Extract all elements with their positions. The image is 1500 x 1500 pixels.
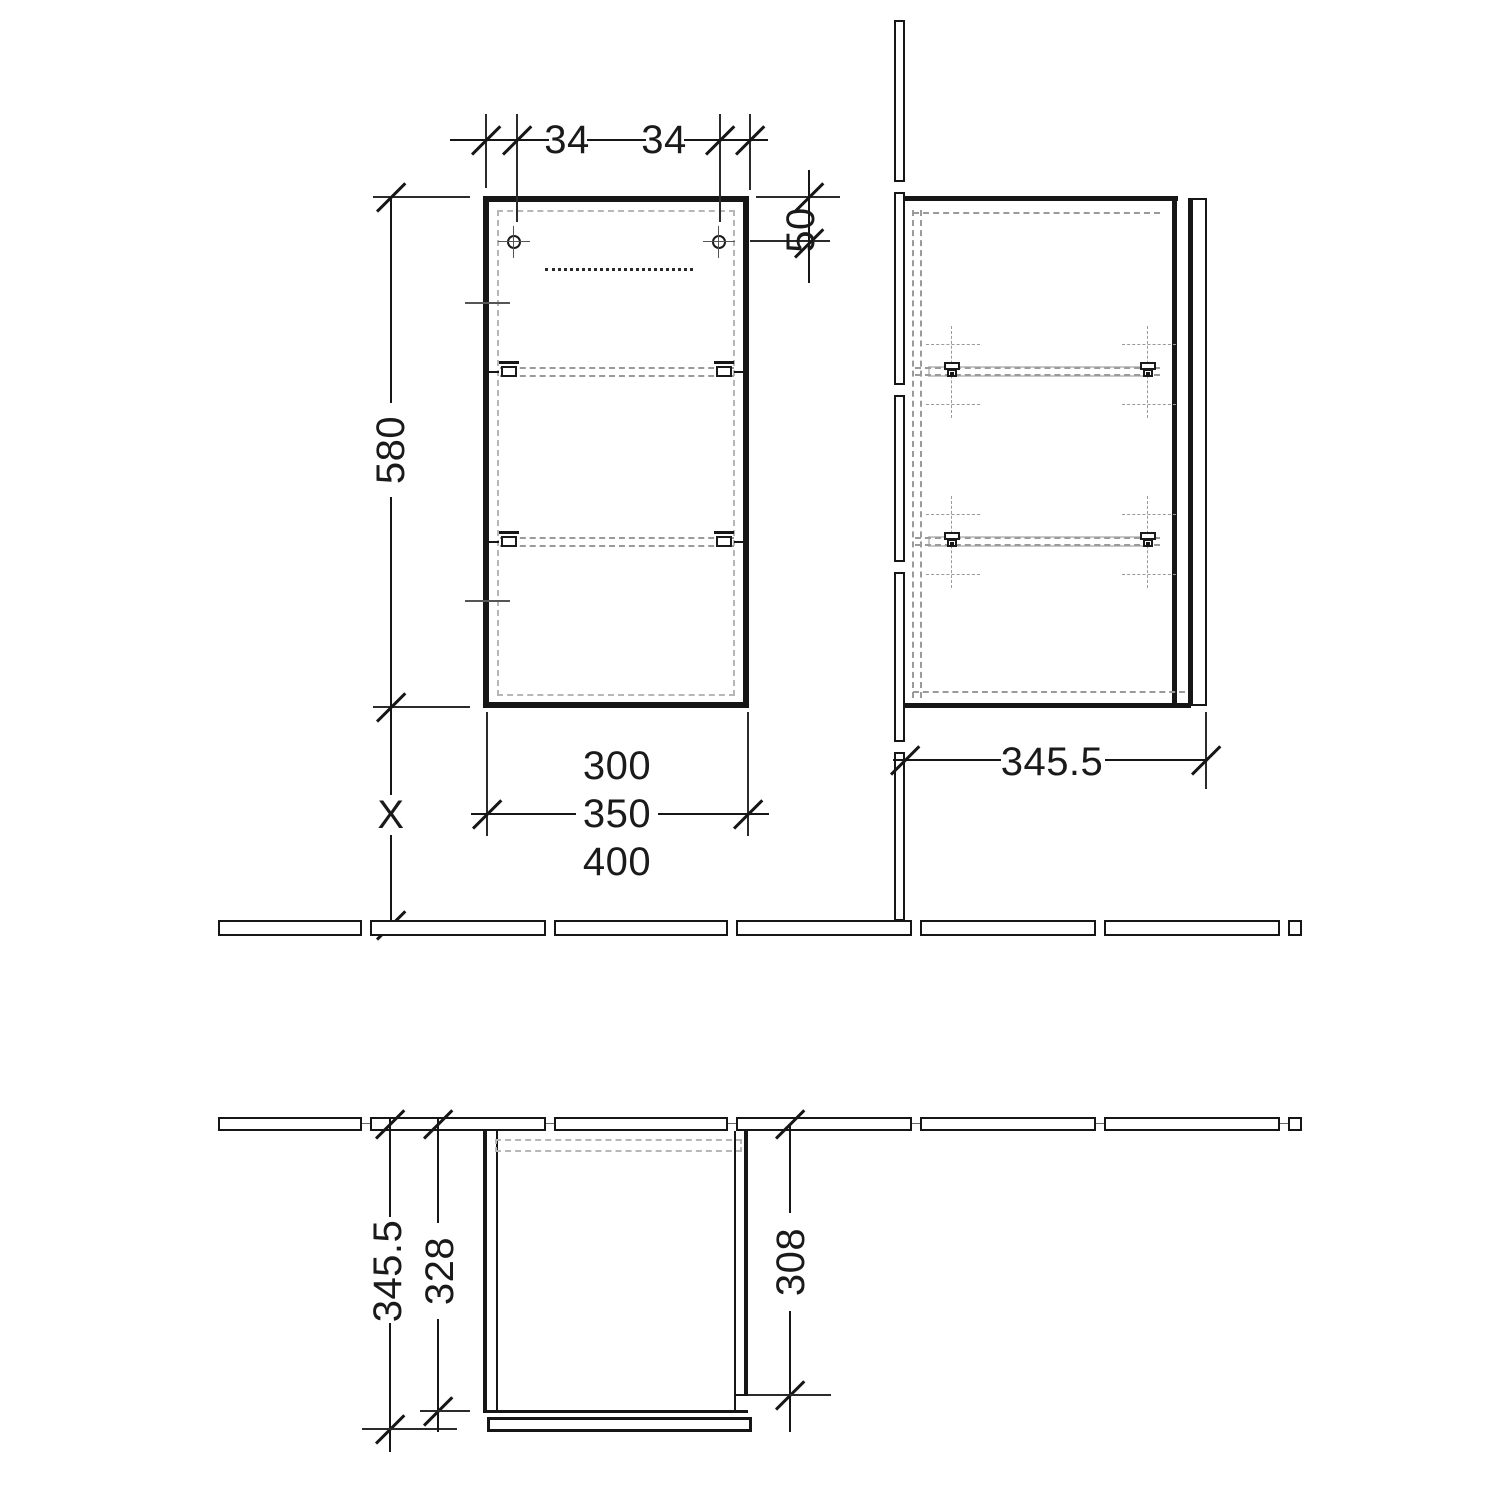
hanging-rail-dashed [495, 1139, 742, 1152]
side-panel-left-outer [483, 1131, 487, 1413]
extension-line [420, 1410, 470, 1412]
dimension-line [789, 1124, 791, 1213]
dimension-line [389, 1117, 391, 1217]
extension-line [748, 1394, 831, 1396]
dim-label-depth-body: 328 [420, 1237, 460, 1305]
dim-label-depth-side: 308 [771, 1228, 811, 1296]
dimension-line [437, 1117, 439, 1223]
wall-segment [1104, 1117, 1280, 1131]
dimension-line [789, 1311, 791, 1432]
dimension-line [389, 1323, 391, 1452]
side-panel-left-inner [496, 1131, 498, 1413]
plan-view: 345.5 328 308 [0, 0, 1500, 1500]
dimension-line [437, 1319, 439, 1432]
wall-segment [1288, 1117, 1302, 1131]
side-panel-right-outer [744, 1131, 748, 1396]
door-panel [487, 1417, 752, 1432]
wall-segment [554, 1117, 728, 1131]
side-panel-step [735, 1394, 748, 1396]
wall-segment [218, 1117, 362, 1131]
technical-drawing-canvas: 34 34 50 580 300 350 400 X [0, 0, 1500, 1500]
side-panel-right-inner [734, 1131, 736, 1413]
carcass-front-edge [485, 1410, 748, 1413]
wall-segment [736, 1117, 912, 1131]
extension-line [362, 1428, 457, 1430]
dim-label-depth-overall: 345.5 [368, 1220, 408, 1323]
wall-segment [920, 1117, 1096, 1131]
